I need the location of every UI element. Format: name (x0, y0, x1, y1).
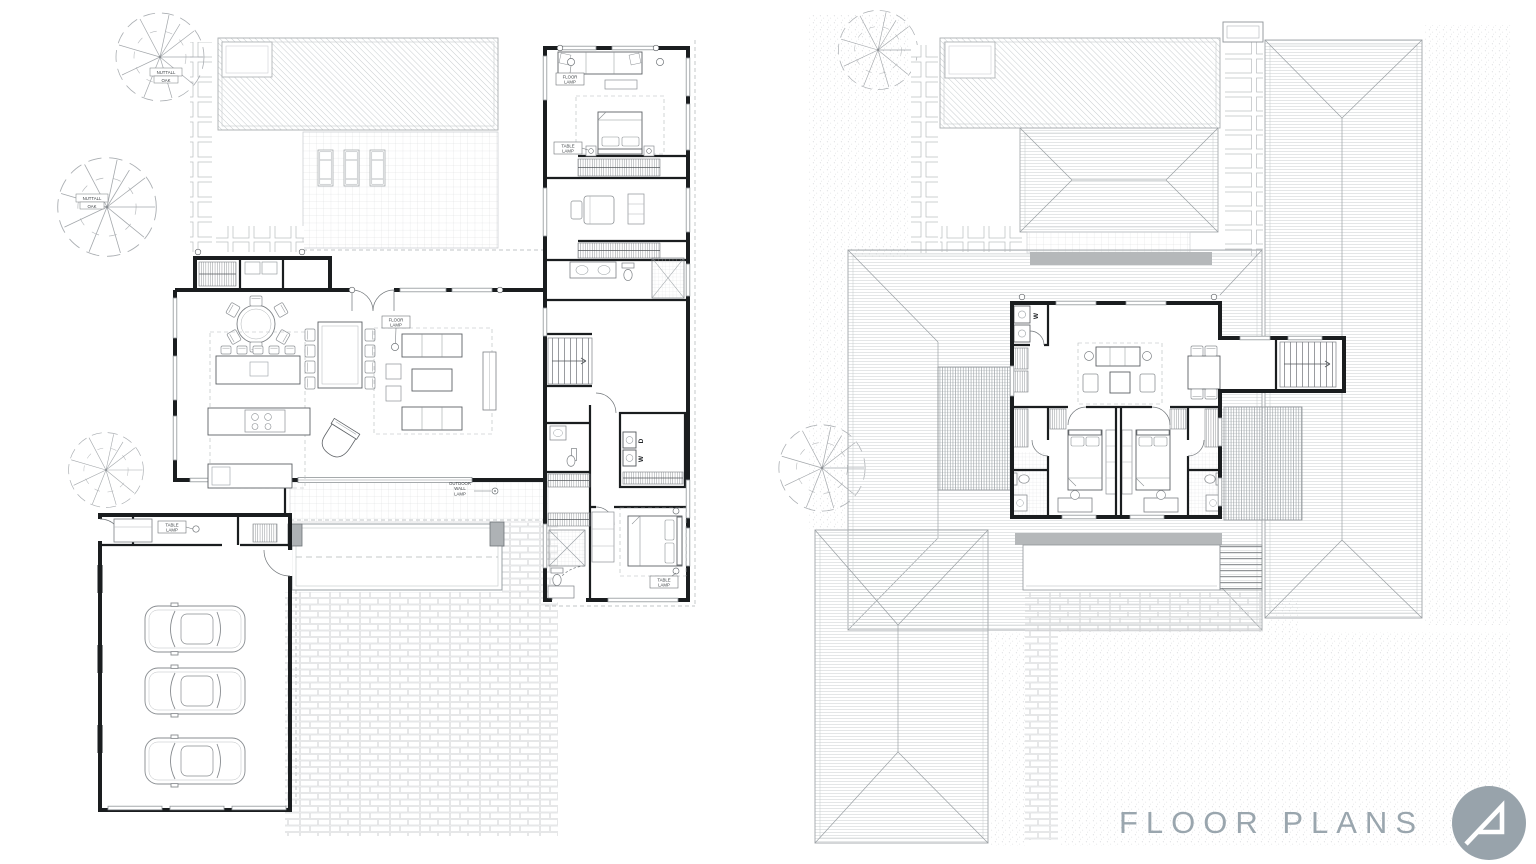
footer: FLOOR PLANS (1119, 784, 1528, 862)
stepping-stones-row (216, 226, 304, 252)
cabana-roof (1020, 128, 1218, 232)
lounge-chair (318, 150, 333, 186)
pool (940, 38, 1220, 128)
svg-text:OAK: OAK (87, 204, 96, 209)
svg-text:LAMP: LAMP (658, 583, 670, 588)
stairs (548, 338, 592, 384)
floor-plans-slide: NUTTALL OAK NUTTALL OAK (0, 0, 1536, 864)
svg-text:OAK: OAK (161, 78, 170, 83)
roof-deck (1224, 407, 1302, 520)
walkway-column (490, 522, 504, 546)
covered-walkway (290, 482, 548, 522)
bed (1136, 430, 1170, 490)
entry-paver (1223, 22, 1263, 42)
stairwell (1280, 342, 1336, 387)
table-lamp-label: TABLE LAMP (650, 573, 678, 588)
balcony-strip (1030, 252, 1212, 265)
kitchen (208, 332, 310, 488)
exterior-stairs (1220, 545, 1262, 590)
guest-bedroom (592, 508, 686, 576)
lounge-chair (370, 150, 385, 186)
lounge-chair (344, 150, 359, 186)
stone-path (285, 592, 558, 836)
table-lamp-label: TABLE LAMP (554, 142, 588, 154)
garage-roof (815, 530, 988, 843)
laundry: D W (623, 432, 683, 484)
balcony-strip (1015, 533, 1222, 545)
dryer-label: D (638, 438, 645, 443)
right-wing-roof (1265, 40, 1422, 618)
master-bed (598, 112, 642, 154)
svg-text:NUTTALL: NUTTALL (157, 70, 176, 75)
table-lamp-label: TABLE LAMP (158, 521, 193, 533)
tree (69, 433, 144, 508)
master-bath (570, 258, 684, 298)
stone-terrace (1025, 592, 1263, 632)
foyer-table (226, 296, 291, 352)
tree (58, 158, 157, 257)
car (145, 603, 245, 655)
bed (1068, 430, 1102, 490)
svg-text:NUTTALL: NUTTALL (83, 196, 102, 201)
first-floor-plan: NUTTALL OAK NUTTALL OAK (58, 13, 695, 836)
desk (1058, 498, 1092, 512)
lower-balcony (1023, 545, 1262, 590)
mudroom (114, 519, 277, 542)
floor-lamp (391, 343, 398, 350)
loft-sofa (1096, 347, 1140, 366)
hall-bath (548, 426, 590, 598)
svg-text:LAMP: LAMP (166, 528, 178, 533)
washer-label: W (638, 455, 645, 462)
grand-piano (317, 418, 360, 462)
garage (145, 603, 245, 787)
svg-text:LAMP: LAMP (562, 149, 574, 154)
washer-label: W (1033, 312, 1040, 319)
lap-pool (288, 522, 504, 590)
living-room (374, 328, 496, 434)
tree-label: NUTTALL OAK (76, 194, 108, 209)
svg-text:LAMP: LAMP (390, 323, 402, 328)
architect-logo-icon (1450, 784, 1528, 862)
plans-drawing: NUTTALL OAK NUTTALL OAK (0, 0, 1536, 864)
roof-deck (938, 367, 1012, 490)
stepping-stones-row (940, 226, 1022, 252)
stepping-stones-column (911, 45, 938, 253)
page-title: FLOOR PLANS (1119, 805, 1424, 841)
stepping-stones-column (190, 42, 212, 252)
desk (1144, 498, 1178, 512)
pantry (199, 262, 277, 286)
second-floor-plan: W (779, 10, 1512, 846)
stepping-stones-column (1225, 42, 1263, 256)
car (145, 735, 245, 787)
svg-text:LAMP: LAMP (454, 491, 466, 496)
dining-table (305, 322, 375, 389)
stone-path (1025, 632, 1058, 840)
pool-area (218, 38, 498, 248)
car (145, 665, 245, 717)
svg-text:LAMP: LAMP (564, 80, 576, 85)
tree-label: NUTTALL OAK (150, 68, 182, 83)
